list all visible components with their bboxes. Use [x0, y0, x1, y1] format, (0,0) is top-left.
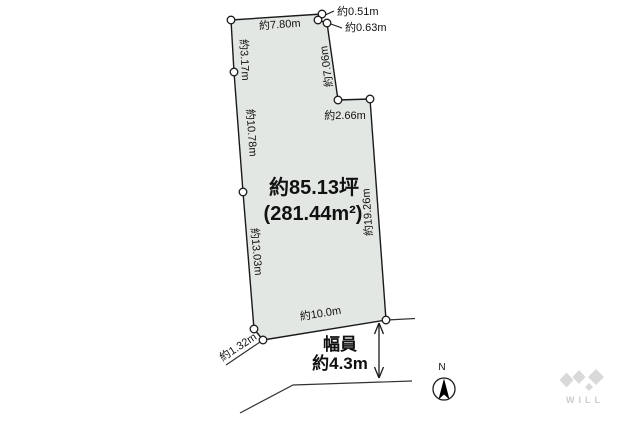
road-width-value: 約4.3m: [312, 353, 368, 373]
logo-wordmark: WILL: [566, 395, 604, 405]
area-label-tsubo: 約85.13坪: [269, 175, 359, 199]
road-far-edge: [240, 381, 412, 413]
logo-diamond-icon: [573, 370, 586, 384]
road-near-edge-right: [387, 319, 415, 321]
site-plan: 約7.80m 約0.51m 約0.63m 約3.17m 約7.06m 約2.66…: [0, 0, 640, 427]
logo-diamond-icon: [560, 373, 574, 388]
will-logo: WILL: [560, 369, 605, 405]
compass: N: [433, 362, 455, 400]
dim-label-right-step: 約2.66m: [324, 108, 366, 122]
dim-label-top-step-1: 約0.51m: [337, 4, 379, 18]
dim-label-top-step-2: 約0.63m: [345, 20, 387, 34]
site-plan-svg: 約7.80m 約0.51m 約0.63m 約3.17m 約7.06m 約2.66…: [0, 0, 640, 427]
road-width-arrow: [375, 323, 384, 378]
logo-diamond-icon: [588, 369, 604, 385]
area-label-sqm: (281.44m²): [264, 203, 363, 225]
compass-north-label: N: [438, 362, 445, 373]
logo-diamond-icon: [585, 383, 593, 391]
road-width-title: 幅員: [323, 334, 357, 354]
